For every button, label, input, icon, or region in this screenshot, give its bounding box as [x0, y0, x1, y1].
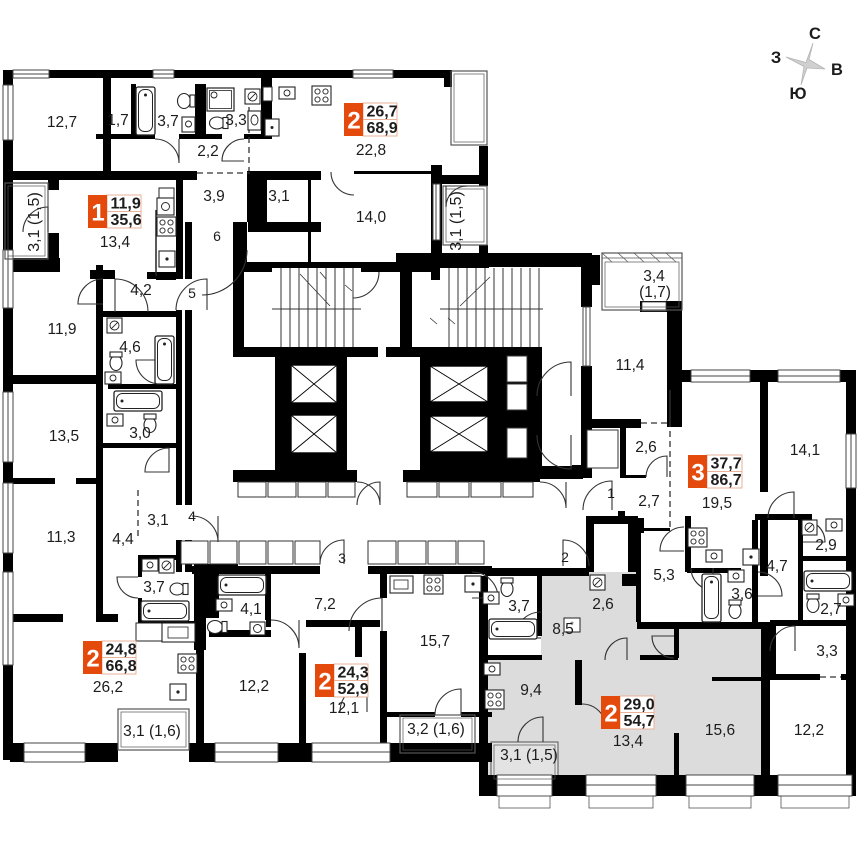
svg-text:11,3: 11,3 — [46, 529, 75, 546]
svg-text:5,3: 5,3 — [653, 567, 675, 584]
svg-text:14,1: 14,1 — [790, 442, 820, 459]
svg-text:2: 2 — [561, 549, 569, 565]
svg-text:3: 3 — [338, 550, 346, 566]
svg-text:1,7: 1,7 — [107, 112, 129, 129]
svg-text:4: 4 — [188, 508, 196, 524]
svg-text:5: 5 — [188, 285, 196, 301]
svg-text:26,7: 26,7 — [367, 104, 398, 121]
svg-text:2: 2 — [86, 646, 99, 673]
svg-text:12,2: 12,2 — [794, 722, 824, 739]
svg-text:3,1: 3,1 — [268, 188, 290, 205]
svg-text:13,4: 13,4 — [613, 733, 644, 750]
svg-text:2,6: 2,6 — [592, 596, 614, 613]
svg-text:6: 6 — [213, 228, 221, 244]
svg-text:12,1: 12,1 — [329, 700, 359, 717]
svg-text:24,8: 24,8 — [106, 642, 137, 659]
svg-text:3: 3 — [691, 460, 704, 487]
svg-text:9,4: 9,4 — [520, 682, 542, 699]
svg-text:15,6: 15,6 — [705, 722, 735, 739]
svg-text:3,9: 3,9 — [203, 188, 225, 205]
svg-text:3,0: 3,0 — [129, 425, 151, 442]
svg-text:22,8: 22,8 — [356, 142, 386, 159]
svg-text:68,9: 68,9 — [367, 120, 398, 137]
svg-text:3,1 (1,5): 3,1 (1,5) — [26, 192, 43, 252]
svg-text:Ю: Ю — [789, 85, 806, 103]
svg-text:В: В — [831, 61, 843, 79]
svg-text:24,3: 24,3 — [338, 665, 369, 682]
svg-text:12,7: 12,7 — [47, 114, 77, 131]
svg-text:2,9: 2,9 — [815, 537, 837, 554]
svg-text:29,0: 29,0 — [624, 697, 655, 714]
svg-text:3,3: 3,3 — [816, 643, 838, 660]
svg-text:2,7: 2,7 — [820, 601, 842, 618]
svg-text:3,3: 3,3 — [225, 112, 247, 129]
svg-text:2,6: 2,6 — [635, 439, 657, 456]
svg-text:З: З — [771, 49, 781, 67]
svg-text:2: 2 — [604, 701, 617, 728]
svg-text:4,4: 4,4 — [112, 531, 134, 548]
svg-text:3,6: 3,6 — [731, 586, 753, 603]
svg-text:13,4: 13,4 — [100, 234, 131, 251]
svg-text:3,1 (1,6): 3,1 (1,6) — [123, 723, 181, 740]
svg-text:54,7: 54,7 — [624, 713, 655, 730]
svg-text:4,6: 4,6 — [119, 339, 141, 356]
svg-text:3,7: 3,7 — [508, 598, 530, 615]
svg-text:12,2: 12,2 — [239, 678, 269, 695]
svg-text:4,7: 4,7 — [766, 558, 788, 575]
svg-text:2: 2 — [347, 108, 360, 135]
svg-text:2,2: 2,2 — [197, 143, 219, 160]
svg-text:37,7: 37,7 — [711, 456, 742, 473]
svg-text:11,9: 11,9 — [111, 196, 141, 213]
svg-text:52,9: 52,9 — [338, 681, 369, 698]
svg-text:7,2: 7,2 — [314, 596, 336, 613]
svg-text:19,5: 19,5 — [702, 495, 732, 512]
svg-text:13,5: 13,5 — [49, 428, 79, 445]
svg-text:86,7: 86,7 — [711, 472, 742, 489]
svg-text:3,2 (1,6): 3,2 (1,6) — [407, 721, 465, 738]
svg-text:15,7: 15,7 — [420, 633, 450, 650]
svg-text:4,2: 4,2 — [130, 282, 152, 299]
svg-text:1: 1 — [91, 200, 104, 227]
svg-text:14,0: 14,0 — [356, 209, 387, 226]
svg-text:3,1 (1,5): 3,1 (1,5) — [448, 191, 465, 251]
svg-text:(1,7): (1,7) — [639, 284, 671, 301]
svg-text:11,4: 11,4 — [615, 357, 644, 374]
svg-text:4,1: 4,1 — [240, 601, 262, 618]
svg-text:3,7: 3,7 — [143, 579, 165, 596]
svg-text:1: 1 — [607, 485, 615, 501]
svg-text:3,1: 3,1 — [147, 512, 169, 529]
svg-text:3,4: 3,4 — [643, 268, 665, 285]
svg-text:2: 2 — [318, 669, 331, 696]
svg-text:35,6: 35,6 — [111, 212, 142, 229]
svg-text:3,7: 3,7 — [157, 113, 179, 130]
svg-text:66,8: 66,8 — [106, 658, 137, 675]
svg-text:11,9: 11,9 — [47, 321, 76, 338]
svg-text:3,1 (1,5): 3,1 (1,5) — [500, 747, 558, 764]
svg-text:С: С — [809, 25, 821, 43]
svg-text:2,7: 2,7 — [638, 493, 660, 510]
svg-text:26,2: 26,2 — [93, 679, 123, 696]
svg-text:8,5: 8,5 — [552, 621, 574, 638]
